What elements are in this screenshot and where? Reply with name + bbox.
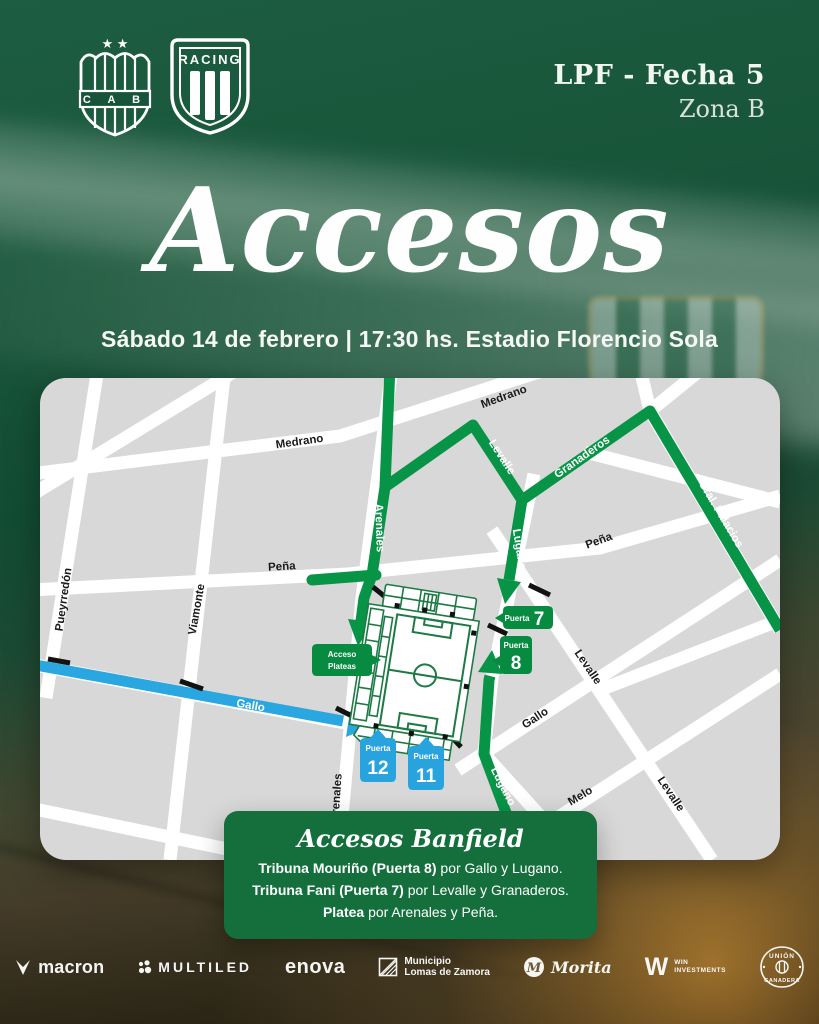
union-ganadera-seal-icon: UNIÓN GANADERA <box>759 944 805 990</box>
info-line-fani: Tribuna Fani (Puerta 7) por Levalle y Gr… <box>236 881 585 901</box>
badge-puerta-7: Puerta 7 <box>495 606 553 630</box>
info-box-title: Accesos Banfield <box>236 824 585 853</box>
route-granaderos-gral-palacios <box>522 411 780 630</box>
svg-text:Medrano: Medrano <box>275 433 324 452</box>
sponsor-morita: M Morita <box>523 956 612 978</box>
svg-text:GANADERA: GANADERA <box>764 978 800 984</box>
banfield-stars-icon: ★ ★ <box>102 36 129 51</box>
svg-text:UNIÓN: UNIÓN <box>769 951 795 960</box>
svg-text:8: 8 <box>511 653 522 674</box>
banfield-crest-logo: ★ ★ C A B <box>78 36 152 138</box>
racing-wordmark: RACING <box>178 52 241 67</box>
municipio-line1: Municipio <box>404 956 451 967</box>
svg-text:Peña: Peña <box>268 560 297 573</box>
win-line1: WIN <box>674 959 688 966</box>
svg-text:Gallo: Gallo <box>235 698 265 715</box>
municipio-logo-icon <box>378 957 398 977</box>
svg-text:Puerta: Puerta <box>504 641 529 650</box>
sponsor-macron: macron <box>14 957 104 978</box>
access-map: Medrano Medrano Peña Peña Pueyrredón Via… <box>40 378 780 860</box>
morita-logo-icon: M <box>523 956 545 978</box>
municipio-line2: Lomas de Zamora <box>404 967 490 978</box>
svg-text:Plateas: Plateas <box>328 662 357 671</box>
sponsor-union-ganadera: UNIÓN GANADERA <box>759 944 805 990</box>
svg-text:M: M <box>526 961 542 976</box>
sponsors-bar: macron MULTILED enova Municipio Lomas de… <box>0 944 819 990</box>
badge-acceso-plateas: Acceso Plateas <box>312 644 381 676</box>
club-logos: ★ ★ C A B RACING <box>78 36 252 138</box>
svg-text:7: 7 <box>534 609 545 630</box>
sponsor-multiled: MULTILED <box>137 959 252 975</box>
racing-club-logo: RACING <box>168 36 252 138</box>
svg-text:12: 12 <box>367 758 388 779</box>
banfield-initials: C A B <box>83 94 147 106</box>
poster: ★ ★ C A B RACING LPF - Fecha <box>0 0 819 1024</box>
sponsor-enova: enova <box>285 956 345 979</box>
win-logo-icon: W <box>645 955 669 980</box>
access-map-card: Medrano Medrano Peña Peña Pueyrredón Via… <box>40 378 780 860</box>
svg-text:Arenales: Arenales <box>372 503 386 552</box>
svg-text:Puerta: Puerta <box>505 614 530 623</box>
event-datetime: Sábado 14 de febrero | 17:30 hs. Estadio… <box>0 326 819 353</box>
svg-text:Gallo: Gallo <box>520 706 551 732</box>
svg-text:Acceso: Acceso <box>328 650 357 659</box>
svg-text:Puerta: Puerta <box>366 744 391 753</box>
svg-text:Puerta: Puerta <box>414 752 439 761</box>
page-title: Accesos <box>0 168 819 296</box>
win-line2: INVESTMENTS <box>674 967 726 974</box>
match-info: LPF - Fecha 5 Zona B <box>553 60 765 123</box>
multiled-logo-icon <box>137 960 152 975</box>
info-line-platea: Platea por Arenales y Peña. <box>236 903 585 923</box>
league-round: LPF - Fecha 5 <box>553 60 765 91</box>
access-info-box: Accesos Banfield Tribuna Mouriño (Puerta… <box>224 811 597 939</box>
info-line-mourino: Tribuna Mouriño (Puerta 8) por Gallo y L… <box>236 859 585 879</box>
sponsor-municipio: Municipio Lomas de Zamora <box>378 956 490 979</box>
macron-logo-icon <box>14 958 32 976</box>
sponsor-win-investments: W WIN INVESTMENTS <box>645 955 726 980</box>
zone-label: Zona B <box>553 95 765 123</box>
svg-text:11: 11 <box>416 766 437 787</box>
